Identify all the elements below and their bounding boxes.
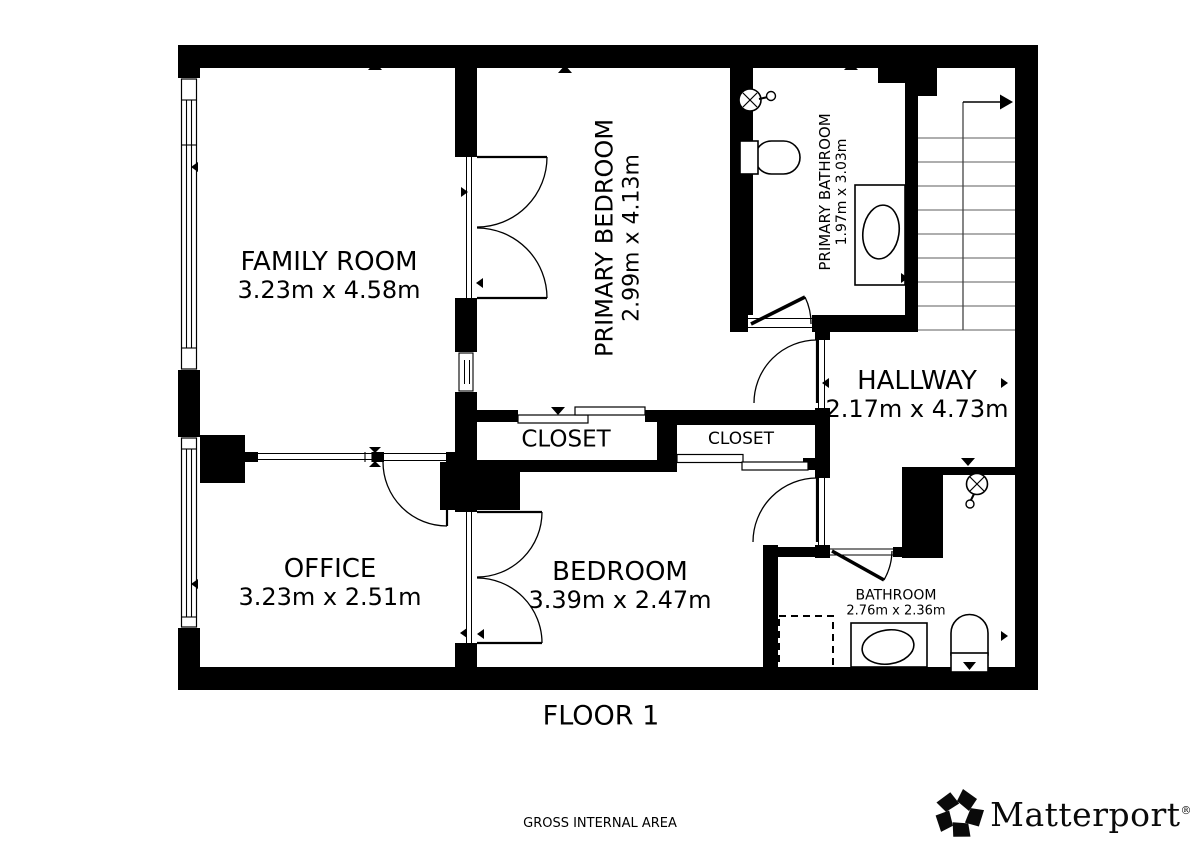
staircase xyxy=(918,95,1015,331)
closet-left-slider xyxy=(518,407,645,423)
closet-right-label: CLOSET xyxy=(708,430,774,450)
family-room-label: FAMILY ROOM 3.23m x 4.58m xyxy=(237,247,420,305)
bathroom-label: BATHROOM 2.76m x 2.36m xyxy=(846,587,945,618)
primary-bathroom-label: PRIMARY BATHROOM 1.97m x 3.03m xyxy=(817,113,851,270)
closet-right-slider xyxy=(677,455,808,471)
matterport-brand: Matterport® xyxy=(928,783,1192,845)
stairs-up-arrow xyxy=(963,95,1013,110)
hallway-label: HALLWAY 2.17m x 4.73m xyxy=(825,366,1008,424)
primary-shower-head-icon xyxy=(739,89,776,111)
room-name: HALLWAY xyxy=(825,366,1008,396)
hallway-primary-bedroom-door xyxy=(754,340,825,408)
family-primary-bedroom-double-door xyxy=(467,157,548,298)
room-name: PRIMARY BEDROOM xyxy=(591,119,619,357)
office-door xyxy=(383,454,447,527)
interior-window xyxy=(455,352,477,392)
family-room-window xyxy=(178,78,200,370)
toilet-icon xyxy=(951,615,988,673)
hallway-bedroom-door xyxy=(753,478,825,545)
shower-pan-dashed xyxy=(779,616,833,669)
primary-bathroom-door xyxy=(748,297,812,328)
matterport-logo-icon xyxy=(928,783,990,845)
room-dims: 1.97m x 3.03m xyxy=(835,113,851,270)
floorplan-page: FAMILY ROOM 3.23m x 4.58m PRIMARY BEDROO… xyxy=(0,0,1200,848)
room-name: BEDROOM xyxy=(528,557,711,587)
room-dims: 2.17m x 4.73m xyxy=(825,396,1008,424)
room-dims: 2.76m x 2.36m xyxy=(846,604,945,619)
windows xyxy=(178,78,477,628)
room-dims: 3.23m x 2.51m xyxy=(238,584,421,612)
room-dims: 2.99m x 4.13m xyxy=(619,119,645,357)
matterport-wordmark: Matterport® xyxy=(990,795,1192,834)
area-summary: GROSS INTERNAL AREA FLOOR 1 68.9 m²FLOOR… xyxy=(394,789,807,848)
shower-head-icon xyxy=(966,474,988,509)
room-name: BATHROOM xyxy=(846,587,945,603)
room-name: CLOSET xyxy=(521,427,610,454)
floor-title: FLOOR 1 xyxy=(543,701,660,732)
primary-toilet-icon xyxy=(740,141,800,174)
room-name: OFFICE xyxy=(238,554,421,584)
bedroom-label: BEDROOM 3.39m x 2.47m xyxy=(528,557,711,615)
bathroom-door xyxy=(830,549,893,580)
gross-internal-area-title: GROSS INTERNAL AREA xyxy=(394,817,807,831)
office-label: OFFICE 3.23m x 2.51m xyxy=(238,554,421,612)
room-name: FAMILY ROOM xyxy=(237,247,420,277)
registered-mark: ® xyxy=(1181,804,1193,817)
room-dims: 3.23m x 4.58m xyxy=(237,277,420,305)
office-window xyxy=(178,437,200,628)
room-name: CLOSET xyxy=(708,430,774,450)
room-name: PRIMARY BATHROOM xyxy=(817,113,834,270)
sink-vanity-icon xyxy=(851,623,927,667)
primary-bedroom-label: PRIMARY BEDROOM 2.99m x 4.13m xyxy=(591,119,644,357)
primary-sink-vanity-icon xyxy=(855,185,905,285)
room-dims: 3.39m x 2.47m xyxy=(528,587,711,615)
closet-left-label: CLOSET xyxy=(521,427,610,454)
family-office-slider xyxy=(257,452,372,462)
